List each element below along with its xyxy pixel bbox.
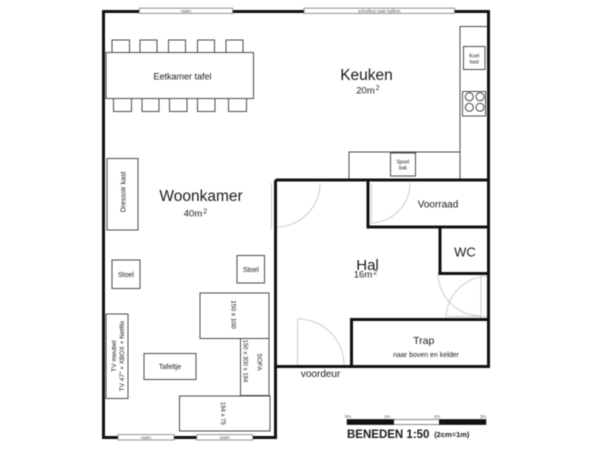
svg-text:40m: 40m bbox=[184, 209, 203, 220]
svg-text:2: 2 bbox=[203, 209, 207, 216]
svg-text:raam: raam bbox=[181, 8, 192, 13]
svg-text:Trap: Trap bbox=[413, 335, 434, 347]
svg-text:(2cm=1m): (2cm=1m) bbox=[434, 430, 470, 439]
svg-text:Tafeltje: Tafeltje bbox=[159, 364, 181, 371]
svg-text:kast: kast bbox=[470, 60, 480, 66]
svg-text:Keuken: Keuken bbox=[340, 67, 393, 84]
svg-text:150 x 300 x 194: 150 x 300 x 194 bbox=[242, 340, 248, 383]
svg-text:SOFA: SOFA bbox=[256, 353, 263, 371]
svg-text:TV meubel: TV meubel bbox=[111, 340, 118, 372]
svg-text:voordeur: voordeur bbox=[301, 369, 341, 380]
svg-text:2m: 2m bbox=[434, 414, 441, 419]
svg-text:naar boven en kelder: naar boven en kelder bbox=[393, 352, 459, 359]
svg-text:bak: bak bbox=[399, 166, 408, 172]
svg-text:raam: raam bbox=[141, 435, 152, 440]
svg-text:Stoel: Stoel bbox=[118, 272, 134, 279]
svg-text:2: 2 bbox=[376, 85, 380, 92]
svg-text:0m: 0m bbox=[345, 414, 352, 419]
svg-text:3m: 3m bbox=[480, 414, 487, 419]
svg-text:150 x 100: 150 x 100 bbox=[230, 300, 237, 329]
svg-text:20m: 20m bbox=[356, 86, 375, 97]
svg-text:raam: raam bbox=[220, 435, 231, 440]
svg-text:BENEDEN 1:50: BENEDEN 1:50 bbox=[347, 429, 429, 441]
svg-text:2: 2 bbox=[373, 270, 377, 277]
svg-text:16m: 16m bbox=[354, 270, 373, 281]
svg-text:1m: 1m bbox=[384, 414, 391, 419]
svg-text:WC: WC bbox=[454, 245, 476, 260]
svg-text:schuifpui naar balkon: schuifpui naar balkon bbox=[358, 8, 401, 13]
svg-text:Eetkamer tafel: Eetkamer tafel bbox=[153, 72, 211, 82]
svg-text:Stoel: Stoel bbox=[243, 267, 259, 274]
svg-text:Voorraad: Voorraad bbox=[418, 200, 459, 211]
svg-text:194 x 75: 194 x 75 bbox=[219, 402, 225, 426]
svg-text:Woonkamer: Woonkamer bbox=[159, 188, 242, 205]
svg-text:Dressoir kast: Dressoir kast bbox=[120, 172, 127, 213]
svg-text:TV 47" + XBOX + Netflix: TV 47" + XBOX + Netflix bbox=[119, 320, 126, 391]
